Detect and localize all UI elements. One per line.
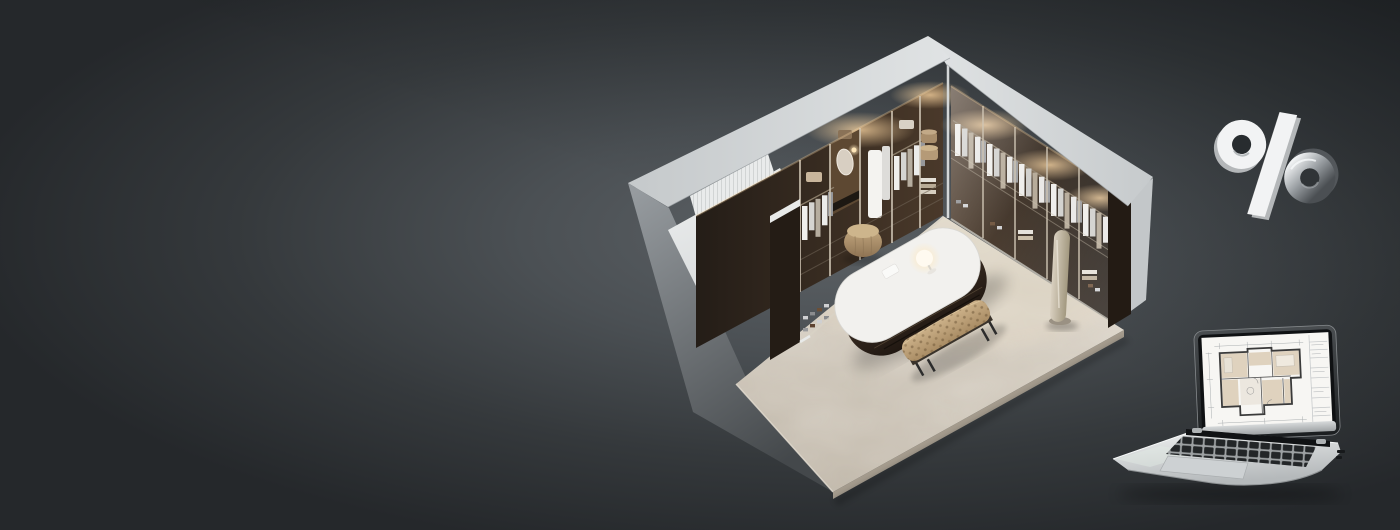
laptop-screen [1194, 325, 1341, 441]
percent-ring-white [1217, 124, 1263, 169]
hanging-robe [868, 150, 882, 218]
promo-banner [0, 0, 1400, 530]
pouf [843, 224, 883, 265]
percent-ring-chrome [1288, 153, 1335, 199]
wardrobe-end-panel-right [1108, 186, 1131, 328]
